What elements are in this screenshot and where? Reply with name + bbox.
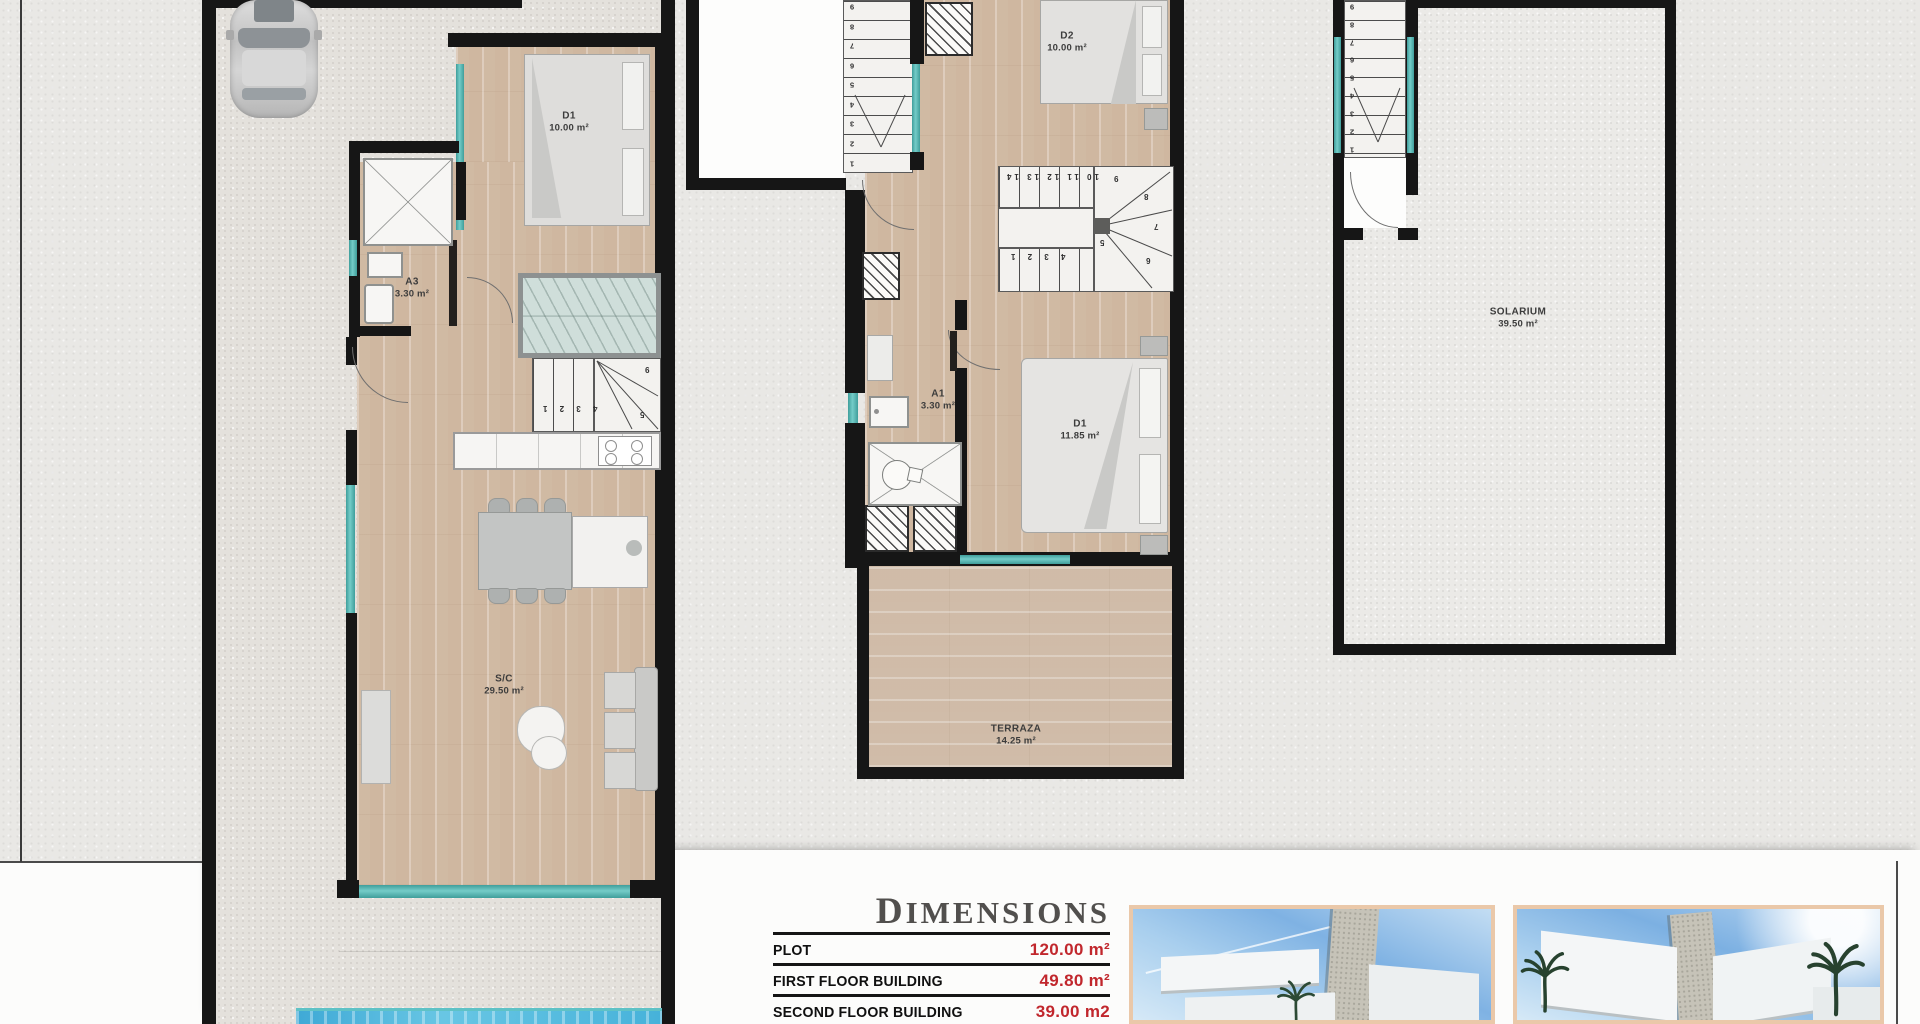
- sofa-cushion: [604, 672, 636, 709]
- wall: [448, 33, 668, 47]
- stair-numbers-column: 9 8 7 6 5 4 3 2 1: [845, 3, 859, 167]
- window-a1: [848, 393, 858, 423]
- wall: [910, 152, 924, 170]
- stove: [598, 436, 652, 466]
- wall: [346, 613, 357, 898]
- sofa-cushion: [604, 712, 636, 749]
- room-name: A1: [931, 388, 945, 399]
- room-area: 11.85 m²: [1060, 430, 1099, 442]
- stairwell-void: [699, 0, 845, 178]
- stairs-winder-lines: [594, 358, 661, 432]
- dining-chair: [544, 588, 566, 604]
- shower-tray: [868, 442, 962, 506]
- dimension-label: FIRST FLOOR BUILDING: [773, 973, 943, 990]
- stairs-flight: [532, 358, 594, 432]
- car-hood-vent: [254, 0, 294, 22]
- boundary-line-left-vertical: [20, 0, 22, 862]
- wall: [845, 423, 865, 568]
- room-name: D2: [1060, 30, 1074, 41]
- stair-number: 7: [1154, 222, 1158, 231]
- wardrobe: [913, 505, 957, 552]
- room-area: 3.30 m²: [395, 288, 429, 300]
- coffee-table: [531, 736, 567, 770]
- room-area: 29.50 m²: [484, 685, 524, 697]
- window-stairwell-right: [1407, 37, 1414, 153]
- stair-numbers: 4 3 2 1: [1006, 252, 1065, 261]
- room-name: TERRAZA: [991, 723, 1042, 734]
- dimension-label: SECOND FLOOR BUILDING: [773, 1004, 963, 1021]
- stair-numbers: 10 11 12 13 14: [1004, 172, 1099, 181]
- door-leaf: [950, 331, 957, 371]
- sink: [367, 252, 403, 278]
- dining-chair: [488, 588, 510, 604]
- wall: [337, 880, 359, 898]
- burner: [605, 453, 617, 465]
- burner: [631, 440, 643, 452]
- wardrobe: [865, 505, 909, 552]
- room-area: 39.50 m²: [1490, 318, 1547, 330]
- room-label-d1: D1 10.00 m²: [549, 109, 589, 134]
- window-terraza: [960, 555, 1070, 564]
- pillow: [1142, 54, 1162, 96]
- wall-annex-top: [349, 141, 459, 153]
- stair-number: 9: [645, 365, 649, 374]
- wall: [630, 880, 662, 898]
- divider: [773, 963, 1110, 966]
- room-label-d2: D2 10.00 m²: [1047, 29, 1087, 54]
- window-annex: [349, 240, 357, 276]
- room-name: SOLARIUM: [1490, 306, 1547, 317]
- wall-annex-left: [349, 141, 360, 337]
- room-area: 14.25 m²: [991, 735, 1042, 747]
- wall: [346, 430, 357, 485]
- palm-tree: [1519, 943, 1571, 1013]
- bottom-band-left: [0, 863, 202, 1024]
- room-label-sc: S/C 29.50 m²: [484, 672, 524, 697]
- room-label-d1: D1 11.85 m²: [1060, 417, 1099, 442]
- dimension-value: 120.00 m²: [1030, 940, 1110, 960]
- wall: [686, 0, 699, 190]
- wall: [1665, 0, 1676, 655]
- wall: [1418, 0, 1676, 8]
- car-windshield: [238, 28, 310, 48]
- burner: [605, 440, 617, 452]
- shower-tray: [363, 158, 453, 246]
- wall: [349, 326, 411, 336]
- pillow: [622, 62, 644, 130]
- wall: [686, 178, 846, 190]
- room-name: D1: [562, 110, 576, 121]
- wall: [1172, 566, 1184, 779]
- stair-number: 6: [1146, 256, 1150, 265]
- bed-double: [524, 54, 650, 226]
- pillow: [1139, 454, 1161, 524]
- sofa-back: [634, 667, 658, 791]
- burner: [631, 453, 643, 465]
- room-area: 3.30 m²: [921, 400, 955, 412]
- villa-render-2: [1513, 905, 1884, 1024]
- window-living-bottom: [359, 885, 630, 898]
- stairs-winder-lines: [1094, 166, 1174, 292]
- wall: [1333, 228, 1363, 240]
- dimension-row: FIRST FLOOR BUILDING 49.80 m²: [773, 969, 1110, 993]
- palm-tree: [1805, 933, 1867, 1017]
- floorplan-sheet: 4 3 2 1 5 9 D1: [0, 0, 1920, 1024]
- window-stairwell: [912, 64, 920, 152]
- window-living-left: [346, 485, 355, 613]
- sofa-cushion: [604, 752, 636, 789]
- wall: [857, 566, 869, 779]
- pillow: [1139, 368, 1161, 438]
- room-area: 10.00 m²: [1047, 42, 1087, 54]
- room-name: S/C: [495, 673, 513, 684]
- island-sink: [626, 540, 642, 556]
- stairs-landing: [998, 208, 1094, 248]
- stair-number: 8: [1144, 192, 1148, 201]
- dimension-value: 49.80 m²: [1040, 971, 1110, 991]
- toilet: [364, 284, 394, 324]
- dining-table: [478, 512, 572, 590]
- dining-chair: [516, 588, 538, 604]
- wardrobe: [862, 252, 900, 300]
- white-volume: [1369, 964, 1479, 1024]
- divider: [773, 932, 1110, 935]
- dimension-value: 39.00 m2: [1036, 1002, 1110, 1022]
- dimension-row: PLOT 120.00 m²: [773, 938, 1110, 962]
- palm-tree: [1275, 975, 1317, 1024]
- wall: [1333, 644, 1676, 655]
- stair-number: 9: [1114, 174, 1118, 183]
- room-area: 10.00 m²: [549, 122, 589, 134]
- shelf: [867, 335, 893, 381]
- wall: [955, 300, 967, 330]
- car-top-view: [228, 0, 320, 120]
- car-mirror-left: [226, 30, 234, 40]
- wardrobe: [925, 2, 973, 56]
- plot-border-left: [202, 0, 216, 1024]
- wall: [456, 162, 466, 220]
- door-leaf: [449, 240, 457, 326]
- room-label-solarium: SOLARIUM 39.50 m²: [1490, 305, 1547, 330]
- stair-numbers: 4 3 2 1: [538, 404, 597, 413]
- nightstand: [1140, 336, 1168, 356]
- room-name: A3: [405, 276, 419, 287]
- wall: [1398, 228, 1418, 240]
- terrace-slab-line: [339, 951, 661, 952]
- sideboard: [361, 690, 391, 784]
- car-mirror-right: [314, 30, 322, 40]
- bed-double: [1021, 358, 1168, 533]
- nightstand: [1144, 108, 1168, 130]
- wall: [857, 767, 1184, 779]
- room-label-a3: A3 3.30 m²: [395, 275, 429, 300]
- divider: [773, 994, 1110, 997]
- room-label-a1: A1 3.30 m²: [921, 387, 955, 412]
- nightstand: [1140, 535, 1168, 555]
- pillow: [622, 148, 644, 216]
- boundary-line-right-vertical: [1896, 861, 1898, 1024]
- pool: [296, 1008, 662, 1024]
- stair-number: 5: [1100, 238, 1104, 247]
- room-name: D1: [1073, 418, 1087, 429]
- patio-lightwell: [518, 273, 661, 358]
- villa-render-1: [1129, 905, 1495, 1024]
- wall: [910, 0, 924, 64]
- sink: [869, 396, 909, 428]
- dimension-label: PLOT: [773, 942, 811, 959]
- pillow: [1142, 6, 1162, 48]
- stair-numbers-column: 9 8 7 6 5 4 3 2 1: [1346, 3, 1359, 153]
- room-label-terraza: TERRAZA 14.25 m²: [991, 722, 1042, 747]
- dimensions-title: DIMENSIONS: [700, 890, 1110, 933]
- car-rear-window: [242, 88, 306, 100]
- dimension-row: SECOND FLOOR BUILDING 39.00 m2: [773, 1000, 1110, 1024]
- car-roof: [242, 50, 306, 86]
- window-stairwell-left: [1334, 37, 1341, 153]
- stair-number: 5: [640, 410, 644, 419]
- boundary-line-left-horizontal: [0, 861, 202, 863]
